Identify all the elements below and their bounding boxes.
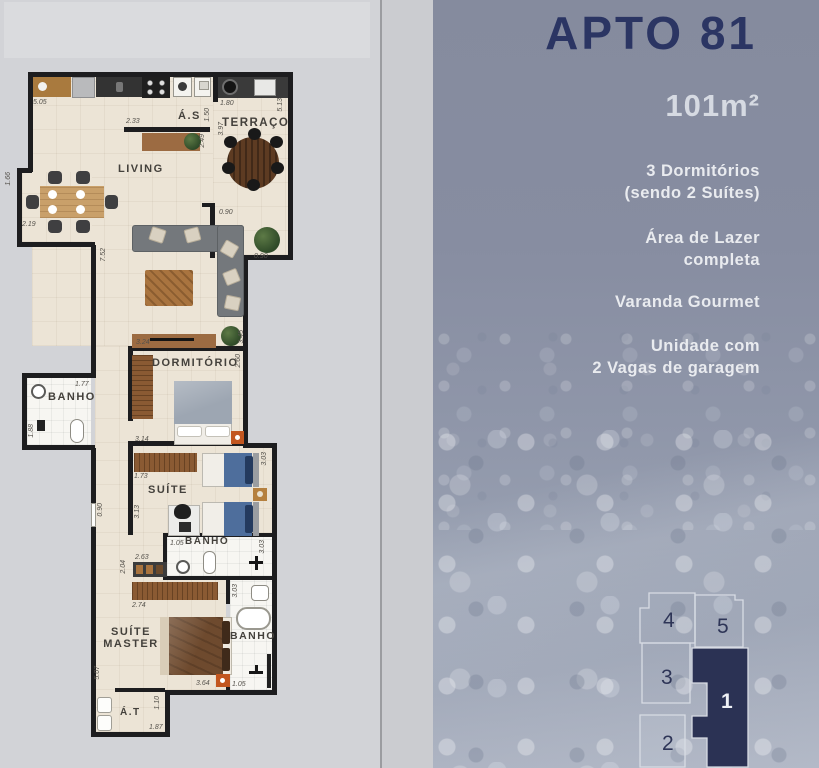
- dining-chair: [105, 195, 118, 209]
- wall: [288, 72, 293, 260]
- grill-icon: [222, 79, 238, 95]
- shower-valve-icon: [37, 420, 45, 431]
- dim-label: 1.10: [154, 696, 162, 710]
- dining-table: [40, 186, 104, 218]
- fridge: [72, 77, 95, 98]
- dim-label: 3.03: [259, 540, 267, 554]
- kitchen-sink-counter: [33, 77, 71, 97]
- kitchen-counter: [96, 77, 142, 97]
- dim-label: 2.60: [235, 354, 243, 368]
- bed-headboard: [253, 502, 259, 536]
- apartment-area: 101m²: [665, 88, 760, 124]
- toilet-icon: [70, 419, 84, 443]
- bathroom-sink-icon: [251, 585, 269, 601]
- wall: [91, 448, 96, 505]
- room-label-terraco: TERRAÇO: [222, 117, 289, 129]
- room-label-banho3: BANHO: [230, 630, 276, 642]
- marble-panel: [4, 2, 370, 58]
- rug: [145, 270, 193, 306]
- toilet-icon: [203, 551, 216, 574]
- building-keyplan: 4 5 3 1 2: [635, 588, 753, 768]
- wall: [91, 527, 96, 737]
- bed-pillow: [222, 621, 230, 644]
- keyplan-unit-label: 3: [661, 666, 673, 689]
- keyplan-unit-1-highlighted: [692, 648, 748, 767]
- room-label-suite-master: SUÍTE MASTER: [98, 626, 164, 650]
- bathroom-sink-icon: [176, 560, 190, 574]
- bed-headboard: [253, 453, 259, 487]
- bed-pillow: [205, 426, 230, 437]
- wall: [17, 168, 22, 247]
- wall: [22, 373, 27, 450]
- dim-label: 3.13: [134, 505, 142, 519]
- wall: [91, 732, 170, 737]
- bed-pillow: [177, 426, 202, 437]
- ocean-foam-texture: [433, 430, 819, 768]
- ocean-panel: [433, 0, 819, 768]
- outdoor-chair: [222, 162, 235, 174]
- keyplan-unit-label: 4: [663, 609, 675, 632]
- dim-label: 5.07: [94, 666, 102, 680]
- dim-label: 1.73: [134, 473, 148, 481]
- dim-label: 3.24: [136, 339, 150, 347]
- wall: [272, 443, 277, 695]
- outdoor-chair: [224, 136, 237, 148]
- dim-label: 2.63: [135, 554, 149, 562]
- dim-label: 3.03: [232, 584, 240, 598]
- outdoor-chair: [248, 128, 261, 140]
- washer-icon: [173, 77, 192, 97]
- dim-label: 1.05: [170, 540, 184, 548]
- dim-label: 3.03: [261, 452, 269, 466]
- nightstand: [231, 431, 244, 444]
- feature-leisure: Área de Lazer completa: [645, 227, 760, 271]
- wardrobe: [132, 582, 218, 600]
- ac-condenser: [97, 715, 112, 731]
- shower-icon: [255, 556, 258, 570]
- dim-label: 1.88: [28, 424, 36, 438]
- desk-chair: [174, 504, 191, 519]
- outdoor-chair: [247, 179, 260, 191]
- nightstand: [216, 674, 230, 687]
- marble-panel-right: [382, 0, 433, 768]
- bathtub-icon: [236, 607, 271, 630]
- dim-label: 0.90: [219, 209, 233, 217]
- wall: [226, 578, 230, 604]
- wall: [115, 688, 165, 692]
- dim-label: 5.05: [33, 99, 47, 107]
- dim-label: 5.13: [277, 98, 285, 112]
- room-label-living: LIVING: [118, 163, 164, 175]
- bed-pillow: [222, 648, 230, 671]
- feature-bedrooms: 3 Dormitórios (sendo 2 Suítes): [625, 160, 760, 204]
- ac-condenser: [97, 697, 112, 713]
- keyplan-unit-label: 2: [662, 732, 674, 755]
- room-label-at: Á.T: [120, 707, 141, 718]
- feature-balcony: Varanda Gourmet: [615, 291, 760, 313]
- shower-glass-door: [267, 654, 271, 688]
- dim-label: 2.33: [126, 118, 140, 126]
- feature-parking: Unidade com 2 Vagas de garagem: [592, 335, 760, 379]
- dim-label: 0.90: [254, 253, 268, 261]
- wardrobe: [134, 453, 197, 472]
- room-label-banho1: BANHO: [48, 391, 96, 403]
- dim-label: 3.97: [218, 122, 226, 136]
- laundry-sink: [194, 77, 211, 97]
- nightstand: [253, 488, 267, 501]
- room-label-suite: SUÍTE: [148, 484, 188, 496]
- room-label-as: Á.S: [178, 110, 201, 122]
- sofa-cushion: [224, 295, 242, 312]
- dim-label: 7.52: [100, 248, 108, 262]
- dining-chair: [48, 171, 62, 184]
- dim-label: 1.77: [75, 381, 89, 389]
- wall: [91, 245, 96, 378]
- wall: [17, 242, 95, 247]
- door-jamb: [91, 503, 96, 527]
- wall: [163, 576, 273, 580]
- tv-icon: [150, 338, 194, 341]
- wall: [124, 127, 210, 132]
- dim-label: 3.14: [135, 436, 149, 444]
- room-label-banho2: BANHO: [185, 536, 229, 547]
- apartment-floorplan-page: Á.S TERRAÇO LIVING BANHO DORMITÓRIO SUÍT…: [0, 0, 819, 768]
- bed-pillow: [245, 505, 253, 533]
- outdoor-cabinet: [254, 79, 276, 96]
- dim-label: 1.05: [232, 681, 246, 689]
- wall: [22, 373, 95, 378]
- dim-label: 1.80: [220, 100, 234, 108]
- bed-duvet: [169, 617, 223, 675]
- wall: [22, 445, 95, 450]
- bed-duvet: [174, 381, 232, 424]
- dining-chair: [48, 220, 62, 233]
- entry-cabinet: [133, 562, 167, 577]
- wall: [128, 443, 133, 535]
- apartment-title: APTO 81: [545, 6, 757, 60]
- terrace-plant-icon: [254, 227, 280, 253]
- dim-label: 2.74: [132, 602, 146, 610]
- dim-label: 1.66: [5, 172, 13, 186]
- wall: [165, 690, 170, 737]
- wall: [165, 690, 277, 695]
- dim-label: 2.19: [22, 221, 36, 229]
- room-label-dormitorio: DORMITÓRIO: [152, 357, 239, 369]
- wall: [202, 203, 215, 207]
- keyplan-unit-label: 5: [717, 615, 729, 638]
- bed-pillow: [245, 456, 253, 484]
- bathroom-sink-icon: [31, 384, 46, 399]
- wardrobe: [132, 355, 153, 419]
- shower-icon: [255, 665, 258, 674]
- dim-label: 1.50: [204, 108, 212, 122]
- dining-chair: [26, 195, 39, 209]
- dining-chair: [76, 171, 90, 184]
- dining-chair: [76, 220, 90, 233]
- dim-label: 0.90: [97, 503, 105, 517]
- dim-label: 2.04: [120, 560, 128, 574]
- outdoor-chair: [270, 136, 283, 148]
- dim-label: 3.64: [196, 680, 210, 688]
- stove-icon: [142, 77, 170, 98]
- outdoor-chair: [271, 162, 284, 174]
- dim-label: 3.45: [238, 330, 246, 344]
- desk-monitor-icon: [179, 522, 191, 532]
- dim-label: 2.49: [199, 134, 207, 148]
- dim-label: 1.87: [149, 724, 163, 732]
- keyplan-unit-label-highlighted: 1: [721, 690, 733, 713]
